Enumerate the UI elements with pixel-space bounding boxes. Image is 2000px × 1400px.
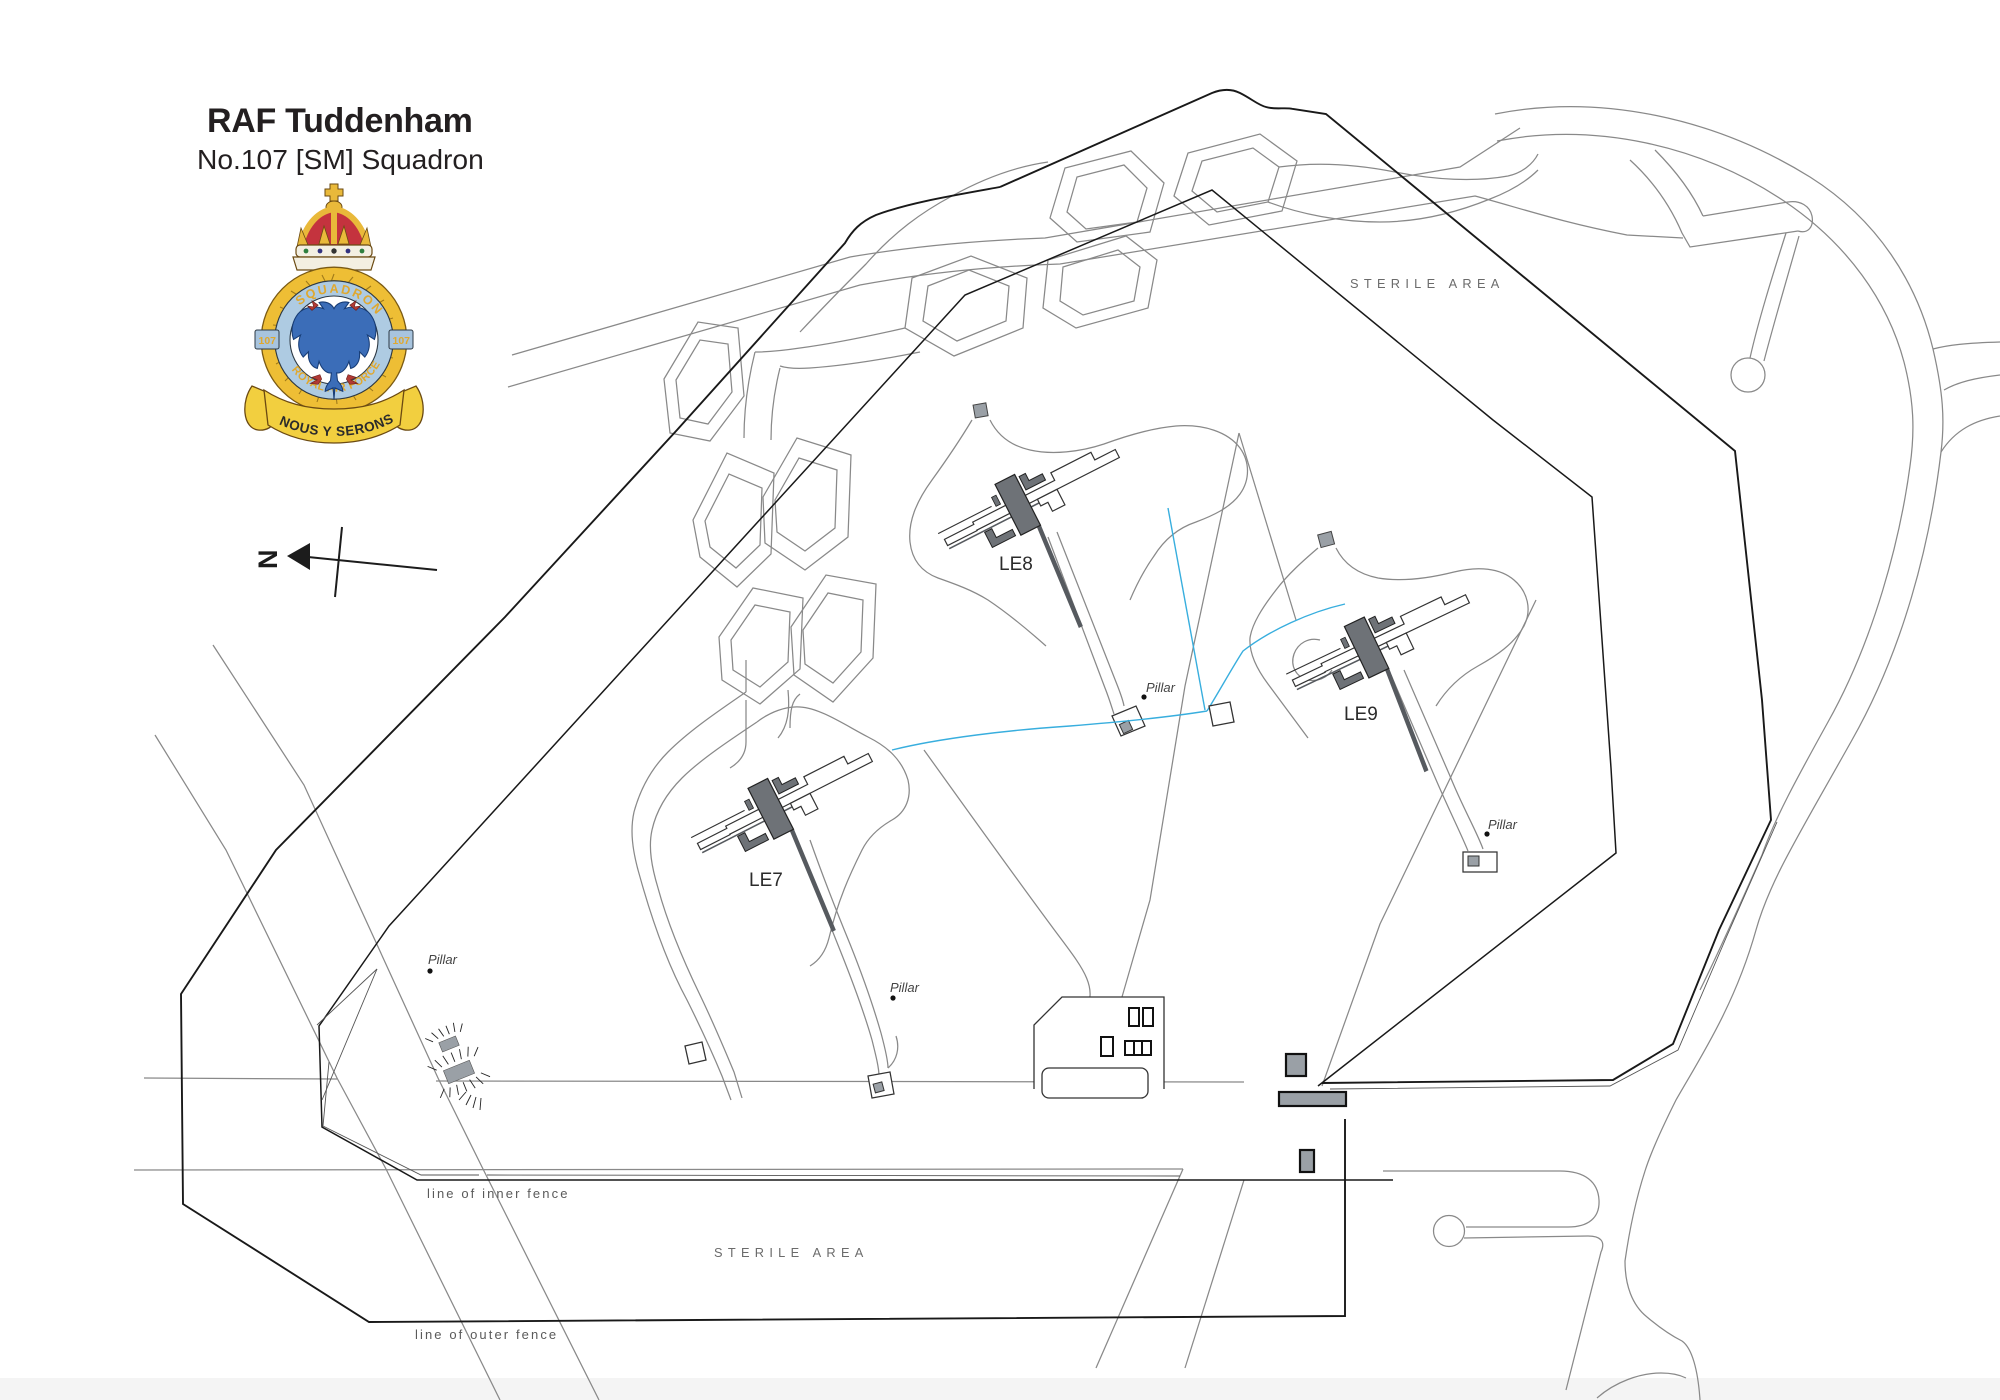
svg-text:line of inner fence: line of inner fence [427, 1186, 570, 1201]
svg-text:LE7: LE7 [749, 870, 783, 891]
svg-text:Pillar: Pillar [1488, 817, 1518, 832]
svg-text:No.107 [SM] Squadron: No.107 [SM] Squadron [197, 143, 484, 175]
svg-text:line of outer fence: line of outer fence [415, 1327, 558, 1342]
svg-text:N: N [253, 550, 283, 570]
svg-text:STERILE AREA: STERILE AREA [1350, 276, 1505, 291]
svg-text:Pillar: Pillar [890, 980, 920, 995]
svg-text:107: 107 [393, 335, 411, 347]
svg-text:LE8: LE8 [999, 554, 1033, 575]
svg-text:RAF Tuddenham: RAF Tuddenham [207, 102, 473, 140]
svg-text:107: 107 [259, 335, 277, 347]
svg-text:Pillar: Pillar [428, 952, 458, 967]
svg-text:LE9: LE9 [1344, 704, 1378, 725]
svg-text:Pillar: Pillar [1146, 680, 1176, 695]
svg-text:STERILE AREA: STERILE AREA [714, 1245, 869, 1260]
